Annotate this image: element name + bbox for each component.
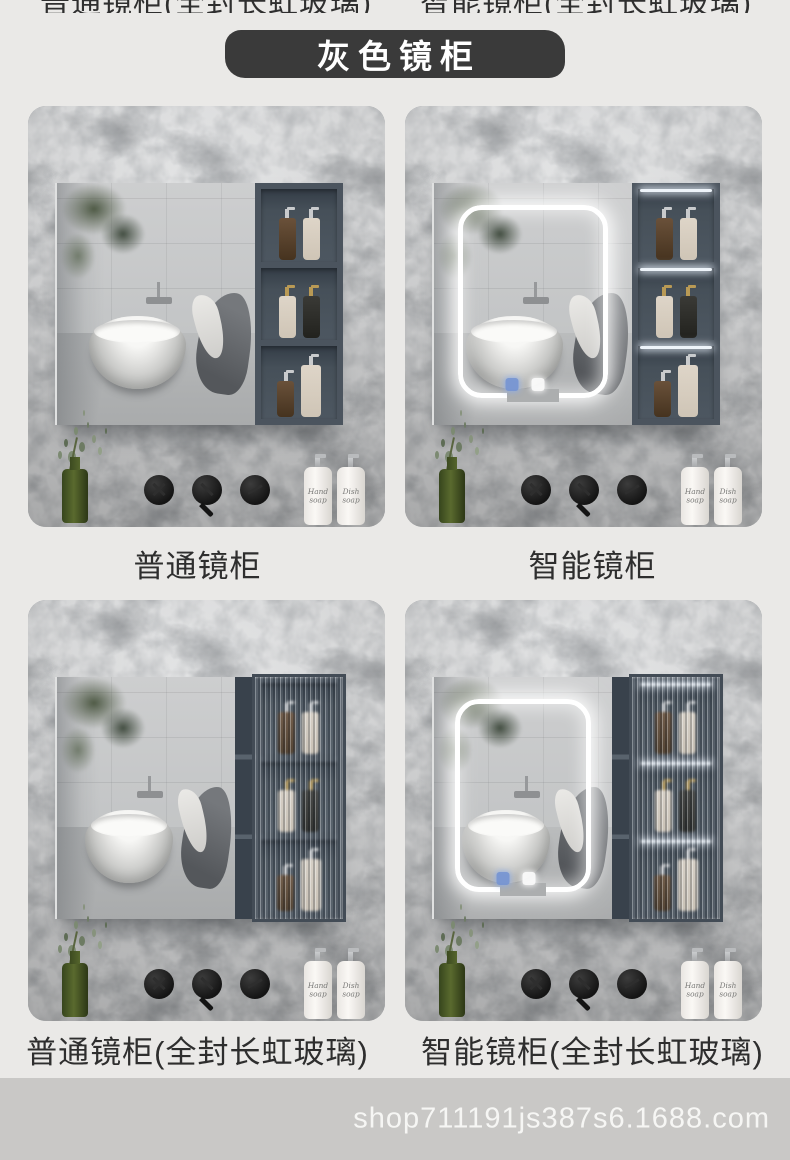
mirror-panel [55,183,255,425]
caption-row-2: 普通镜柜(全封长虹玻璃) 智能镜柜(全封长虹玻璃) [0,1021,790,1078]
vanity-props: Hand soap Dish soap [405,919,762,1021]
eucalyptus-stems [46,915,122,969]
caption-smart: 智能镜柜 [395,541,790,586]
soap-bottles: Hand soap Dish soap [304,961,365,1019]
led-light-frame [458,205,609,399]
vanity-props: Hand soap Dish soap [405,425,762,527]
faucet-knobs [144,475,270,505]
soap-bottle-dish: Dish soap [337,467,365,525]
knob [144,969,174,999]
shelf-cell [638,268,714,341]
led-frame-gap [500,883,546,896]
soap-bottle-hand: Hand soap [681,961,709,1019]
soap-bottle-hand: Hand soap [304,961,332,1019]
knob-with-spout [192,475,222,505]
faucet-knobs [144,969,270,999]
amber-bottle [277,381,294,417]
soap-bottles: Hand soap Dish soap [304,467,365,525]
knob [240,969,270,999]
black-bottle [680,296,697,338]
caption-plain-fluted: 普通镜柜(全封长虹玻璃) [0,1027,395,1072]
soap-bottles: Hand soap Dish soap [681,961,742,1019]
fluted-glass-shelf-unit [255,677,343,919]
amber-bottle [279,218,296,260]
promo-page: 普通镜柜(全封长虹玻璃) 智能镜柜(全封长虹玻璃) 灰色镜柜 [0,0,790,1160]
mirror-cabinet [432,183,720,425]
clipped-previous-captions: 普通镜柜(全封长虹玻璃) 智能镜柜(全封长虹玻璃) [0,0,790,13]
product-photo-smart-cabinet: Hand soap Dish soap [405,106,762,527]
shelf-cell [261,346,337,419]
mirror-cabinet [55,183,343,425]
open-shelf-unit [255,183,343,425]
soap-bottle-hand: Hand soap [304,467,332,525]
soap-bottles: Hand soap Dish soap [681,467,742,525]
soap-bottle-dish: Dish soap [714,467,742,525]
touch-controls [506,378,545,391]
shelf-cell [261,268,337,341]
knob-with-spout [569,475,599,505]
eucalyptus-stems [423,915,499,969]
mirror-panel [432,183,632,425]
shelf-cell [638,189,714,262]
led-frame-gap [507,389,558,402]
cream-bottle [301,365,321,417]
product-photo-smart-fluted-cabinet: Hand soap Dish soap [405,600,762,1021]
wall-faucet [146,297,172,304]
knob [521,475,551,505]
fluted-glass-door [252,674,346,922]
led-light-frame [455,699,590,893]
green-vase [62,469,88,523]
caption-smart-fluted: 智能镜柜(全封长虹玻璃) [395,1027,790,1072]
touch-icon-light [532,378,545,391]
open-shelf-unit-lit [632,183,720,425]
knob [144,475,174,505]
touch-icon-light [522,872,535,885]
soap-bottle-dish: Dish soap [714,961,742,1019]
fluted-glass-shelf-unit-lit [632,677,720,919]
knob [617,475,647,505]
cream-bottle [279,296,296,338]
knob [521,969,551,999]
shelf-cell [261,189,337,262]
hanging-plant [55,223,103,289]
knob [240,475,270,505]
faucet-knobs [521,475,647,505]
knob-with-spout [192,969,222,999]
caption-plain: 普通镜柜 [0,541,395,586]
vanity-props: Hand soap Dish soap [28,919,385,1021]
eucalyptus-stems [423,421,499,475]
watermark-band: shop711191js387s6.1688.com [0,1078,790,1160]
touch-icon-defog [496,872,509,885]
soap-bottle-hand: Hand soap [681,467,709,525]
mirror-cabinet [55,677,343,919]
amber-bottle [656,218,673,260]
amber-bottle [654,381,671,417]
fluted-glass-door [629,674,723,922]
shelf-cell [638,346,714,419]
shop-url-watermark: shop711191js387s6.1688.com [353,1103,770,1136]
cream-bottle [678,365,698,417]
faucet-knobs [521,969,647,999]
hanging-plant [55,717,103,783]
product-photo-plain-fluted-cabinet: Hand soap Dish soap [28,600,385,1021]
soap-bottle-dish: Dish soap [337,961,365,1019]
mirror-panel [432,677,612,919]
cream-bottle [680,218,697,260]
wall-faucet [137,791,163,798]
eucalyptus-stems [46,421,122,475]
mirror-cabinet [432,677,720,919]
cream-bottle [303,218,320,260]
mirror-panel [55,677,235,919]
green-vase [439,469,465,523]
touch-controls [496,872,535,885]
product-photo-plain-cabinet: Hand soap Dish soap [28,106,385,527]
section-badge: 灰色镜柜 [225,30,565,78]
vanity-props: Hand soap Dish soap [28,425,385,527]
knob-with-spout [569,969,599,999]
clipped-caption-left: 普通镜柜(全封长虹玻璃) [40,0,372,13]
cream-bottle [656,296,673,338]
touch-icon-defog [506,378,519,391]
caption-row-1: 普通镜柜 智能镜柜 [0,527,790,600]
green-vase [439,963,465,1017]
black-bottle [303,296,320,338]
clipped-caption-right: 智能镜柜(全封长虹玻璃) [420,0,752,13]
green-vase [62,963,88,1017]
knob [617,969,647,999]
